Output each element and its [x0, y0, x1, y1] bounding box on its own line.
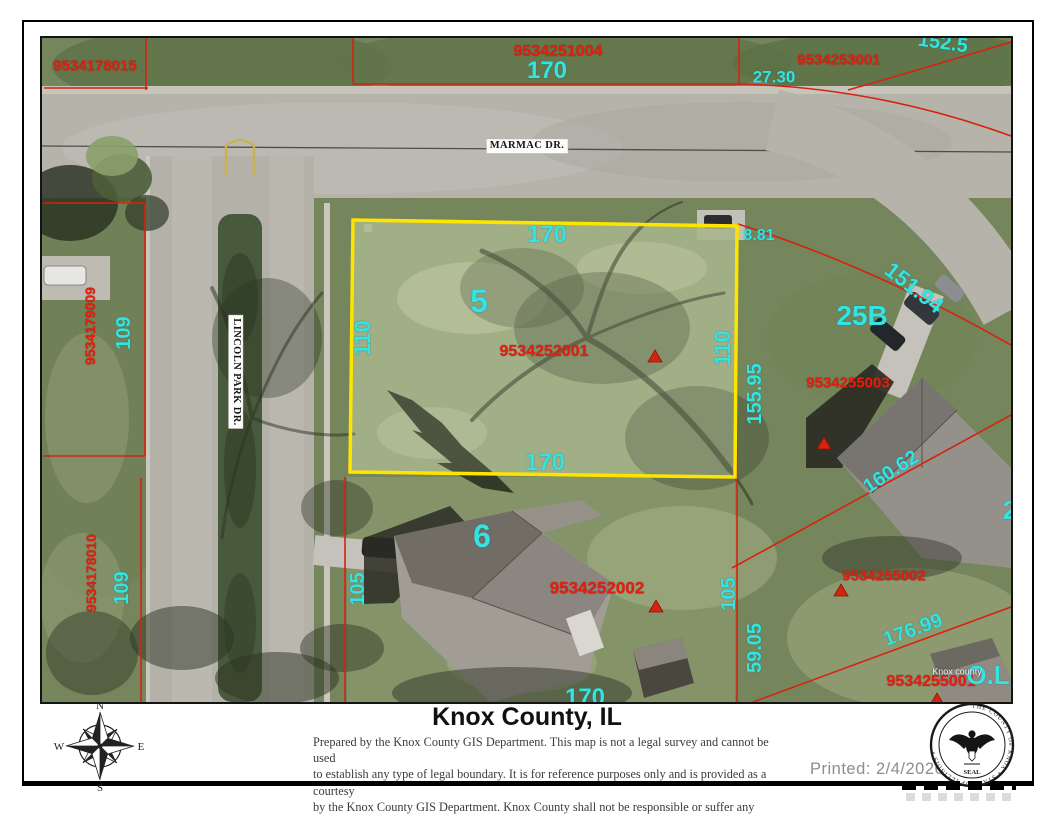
- dimension-170-north: 170: [527, 59, 567, 83]
- lot-number-5: 5: [470, 285, 488, 317]
- parcel-number-9534178010: 9534178010: [84, 534, 98, 612]
- lot-number-6: 6: [473, 520, 491, 552]
- gis-map-page: 9534178015 9534251004 9534253001 9534179…: [0, 0, 1056, 816]
- parcel-number-9534253001: 9534253001: [797, 53, 880, 68]
- parcel-number-9534178015: 9534178015: [53, 59, 136, 74]
- parcel-number-9534255003: 9534255003: [806, 376, 889, 391]
- parcel-number-9534255002: 9534255002: [842, 569, 925, 584]
- lot-number-25B: 25B: [836, 302, 887, 330]
- street-label-lincoln-park-dr: LINCOLN PARK DR.: [229, 315, 243, 428]
- dimension-105-east: 105: [719, 577, 739, 610]
- map-title: Knox County, IL: [277, 703, 777, 732]
- compass-east-label: E: [138, 741, 145, 753]
- parcel-number-9534252002: 9534252002: [550, 580, 645, 597]
- street-label-marmac-dr: MARMAC DR.: [487, 139, 568, 153]
- compass-south-label: S: [97, 782, 103, 794]
- parcel-map: 9534178015 9534251004 9534253001 9534179…: [40, 36, 1013, 704]
- dimension-8-81: 8.81: [743, 228, 774, 244]
- dimension-170-lot5-bottom: 170: [525, 451, 565, 475]
- dimension-105-west: 105: [348, 572, 368, 605]
- disclaimer-line: Prepared by the Knox County GIS Departme…: [313, 734, 773, 766]
- disclaimer-text: Prepared by the Knox County GIS Departme…: [313, 734, 773, 816]
- lot-number-2-partial: 2: [1003, 497, 1013, 523]
- dimension-27-30: 27.30: [753, 69, 796, 86]
- knox-county-watermark: Knox county: [932, 668, 982, 677]
- dimension-109-lower: 109: [112, 571, 132, 604]
- dimension-170-lot5-top: 170: [527, 223, 567, 247]
- dimension-170-lot6-bottom: 170: [565, 686, 605, 704]
- aerial-photo: [42, 38, 1011, 702]
- compass-rose-icon: N S W E: [52, 698, 148, 794]
- seal-center-text: SEAL: [964, 769, 982, 776]
- printed-date: Printed: 2/4/2026: [810, 760, 944, 779]
- county-seal-icon: THE COUNTY OF KNOX • STATE OF ILLINOIS •…: [927, 700, 1017, 790]
- dimension-59-05: 59.05: [745, 623, 765, 673]
- dimension-155-95: 155.95: [745, 363, 765, 424]
- compass-north-label: N: [96, 700, 104, 712]
- frame-dash-artifact: [906, 793, 1016, 801]
- parcel-number-9534252001: 9534252001: [500, 344, 589, 360]
- dimension-110-west: 110: [352, 320, 374, 356]
- dimension-109-upper: 109: [114, 316, 134, 349]
- compass-west-label: W: [54, 741, 65, 753]
- disclaimer-line: to establish any type of legal boundary.…: [313, 766, 773, 798]
- parcel-number-9534179009: 9534179009: [83, 287, 97, 365]
- frame-dash-artifact: [902, 781, 1016, 790]
- dimension-110-east: 110: [712, 330, 734, 366]
- disclaimer-line: by the Knox County GIS Department. Knox …: [313, 799, 773, 816]
